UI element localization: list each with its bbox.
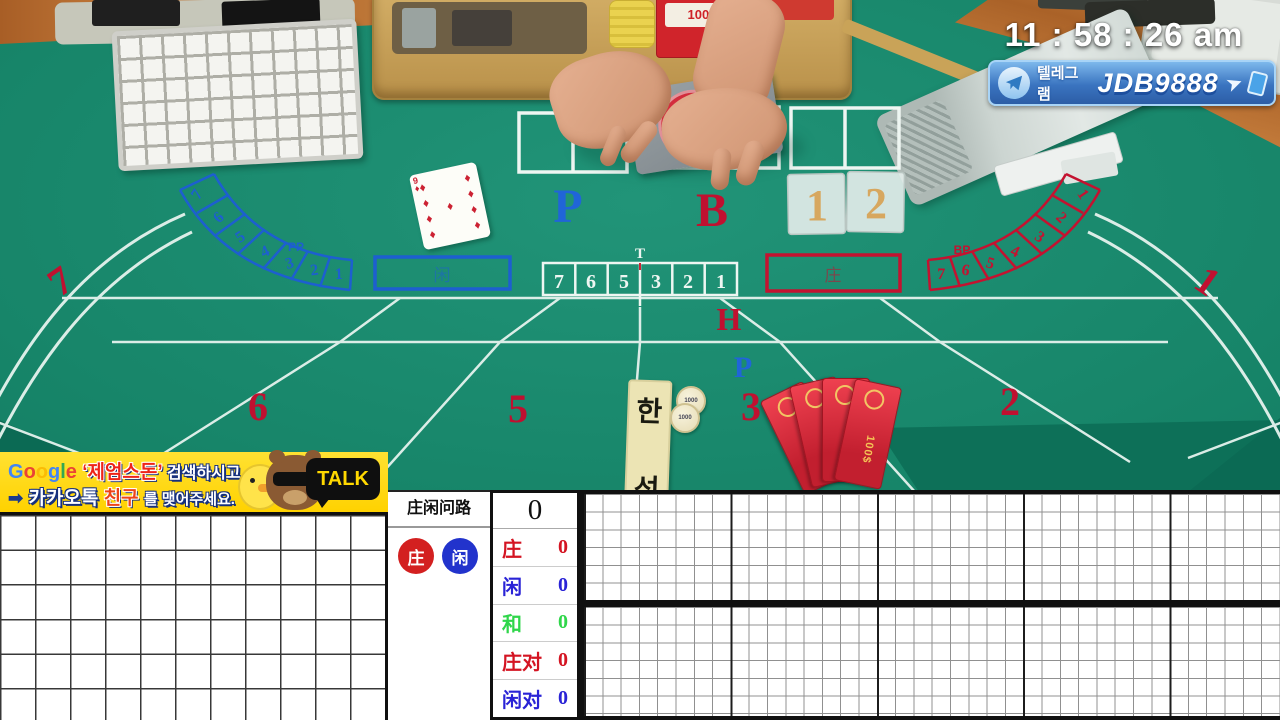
banker-pair-count: 0 bbox=[558, 649, 568, 672]
ad-line-2: ➡ 카카오톡 친구 를 맺어주세요. bbox=[8, 483, 235, 510]
stat-row-banker-pair: 庄对 0 bbox=[493, 642, 577, 680]
banker-count: 0 bbox=[558, 536, 568, 559]
kakaotalk-bubble: TALK bbox=[306, 458, 380, 500]
tie-label: 和 bbox=[502, 608, 522, 637]
paper-plane-icon: ➤ bbox=[1222, 68, 1246, 97]
svg-text:5: 5 bbox=[984, 254, 996, 273]
card-pips: ♦♦♦♦ ♦ ♦♦♦♦ bbox=[418, 171, 481, 241]
telegram-banner[interactable]: 텔레그램 JDB9888 ➤ bbox=[988, 60, 1276, 106]
tip-strip-t-label: T bbox=[635, 246, 645, 262]
player-count: 0 bbox=[558, 574, 568, 597]
voucher-value: 100$ bbox=[860, 434, 877, 464]
banker-arc bbox=[928, 174, 1100, 290]
player-letter: P bbox=[553, 180, 582, 233]
stream-clock: 11 : 58 : 26 am bbox=[985, 16, 1263, 54]
stat-row-tie: 和 0 bbox=[493, 605, 577, 643]
big-road-upper-grid bbox=[584, 494, 1280, 600]
svg-text:3: 3 bbox=[741, 384, 761, 429]
plaque-number-2: 2 bbox=[865, 179, 887, 228]
stat-row-banker: 庄 0 bbox=[493, 529, 577, 567]
phone-icon bbox=[1247, 70, 1269, 96]
svg-text:3: 3 bbox=[284, 254, 296, 273]
plaque-number-1: 1 bbox=[806, 181, 828, 230]
p-marker: P bbox=[734, 351, 752, 384]
ad-keyword: ‘제엄스돈’ bbox=[82, 462, 162, 483]
player-pair-label: PP bbox=[288, 240, 304, 254]
svg-text:4: 4 bbox=[1008, 243, 1022, 262]
svg-text:3: 3 bbox=[651, 271, 661, 293]
live-baccarat-stream: 100s bbox=[0, 0, 1280, 720]
svg-text:2: 2 bbox=[309, 262, 319, 280]
svg-text:7: 7 bbox=[188, 186, 207, 202]
svg-text:3: 3 bbox=[1031, 228, 1047, 247]
big-road-lower-grid bbox=[584, 607, 1280, 716]
big-road-scoreboard bbox=[580, 490, 1280, 720]
duck-eye bbox=[250, 478, 255, 483]
svg-text:7: 7 bbox=[39, 257, 81, 305]
svg-text:2: 2 bbox=[683, 271, 693, 293]
banker-label: 庄 bbox=[502, 533, 522, 562]
player-label: 闲 bbox=[502, 571, 522, 600]
number-plaques: 1 2 bbox=[787, 172, 904, 235]
banker-letter: B bbox=[696, 184, 728, 237]
voucher-seal-icon bbox=[862, 388, 886, 412]
bear-muzzle bbox=[283, 490, 307, 505]
scoreboard-divider bbox=[584, 600, 1280, 607]
road-prediction-panel: 庄闲问路 庄 闲 bbox=[388, 490, 490, 720]
casino-chip: 1000 bbox=[670, 403, 700, 433]
road-panel-title: 庄闲问路 bbox=[388, 492, 490, 528]
telegram-label: 텔레그램 bbox=[1037, 62, 1091, 104]
stats-panel: 0 庄 0 闲 0 和 0 庄对 0 闲对 0 bbox=[490, 490, 580, 720]
svg-text:6: 6 bbox=[586, 271, 596, 293]
svg-text:6: 6 bbox=[248, 384, 268, 429]
player-badge: 闲 bbox=[442, 538, 478, 574]
svg-text:1: 1 bbox=[716, 271, 726, 293]
ad-friend-word: 친구 bbox=[104, 488, 139, 509]
bubble-tail bbox=[316, 498, 330, 508]
banker-pair-label: 庄对 bbox=[502, 646, 542, 675]
svg-text:2: 2 bbox=[1052, 209, 1070, 227]
h-marker: H bbox=[717, 301, 742, 337]
svg-text:1: 1 bbox=[1187, 257, 1229, 305]
player-bet-box-glyph: 闲 bbox=[434, 266, 451, 286]
talk-label: TALK bbox=[317, 468, 369, 491]
arrow-icon: ➡ bbox=[8, 488, 23, 508]
svg-text:7: 7 bbox=[937, 266, 946, 283]
telegram-icon bbox=[998, 67, 1030, 99]
stat-row-player-pair: 闲对 0 bbox=[493, 680, 577, 717]
total-hands-count: 0 bbox=[493, 493, 577, 529]
tie-count: 0 bbox=[558, 611, 568, 634]
telegram-handle: JDB9888 bbox=[1098, 68, 1219, 99]
ad-search-text: 검색하시고 bbox=[167, 465, 241, 482]
svg-text:1: 1 bbox=[1073, 186, 1092, 202]
svg-text:1: 1 bbox=[335, 266, 344, 283]
svg-text:7: 7 bbox=[554, 271, 564, 293]
stat-row-player: 闲 0 bbox=[493, 567, 577, 605]
svg-text:5: 5 bbox=[508, 386, 528, 431]
svg-text:5: 5 bbox=[619, 271, 629, 293]
banker-badge: 庄 bbox=[398, 538, 434, 574]
svg-text:6: 6 bbox=[960, 262, 970, 280]
road-badges: 庄 闲 bbox=[388, 528, 490, 574]
bead-road-grid bbox=[0, 512, 388, 720]
ad-kakaotalk-word: 카카오톡 bbox=[28, 488, 98, 509]
player-arc bbox=[180, 174, 352, 290]
svg-text:4: 4 bbox=[258, 243, 272, 262]
plaque-char-top: 한 bbox=[636, 390, 663, 431]
ad-line2-rest: 를 맺어주세요. bbox=[144, 491, 235, 508]
player-pair-label: 闲对 bbox=[502, 684, 542, 713]
google-logo: Google bbox=[8, 461, 77, 483]
bear-ear bbox=[269, 450, 285, 464]
ad-line-1: Google ‘제엄스돈’ 검색하시고 bbox=[8, 457, 241, 484]
banker-bet-box-glyph: 庄 bbox=[825, 266, 842, 286]
svg-text:5: 5 bbox=[232, 228, 248, 247]
banker-pair-label: BP bbox=[954, 243, 971, 257]
player-pair-count: 0 bbox=[558, 687, 568, 710]
svg-text:2: 2 bbox=[1000, 379, 1020, 424]
svg-text:6: 6 bbox=[210, 209, 228, 227]
voucher-fan: 100$ 100$ bbox=[778, 372, 908, 494]
